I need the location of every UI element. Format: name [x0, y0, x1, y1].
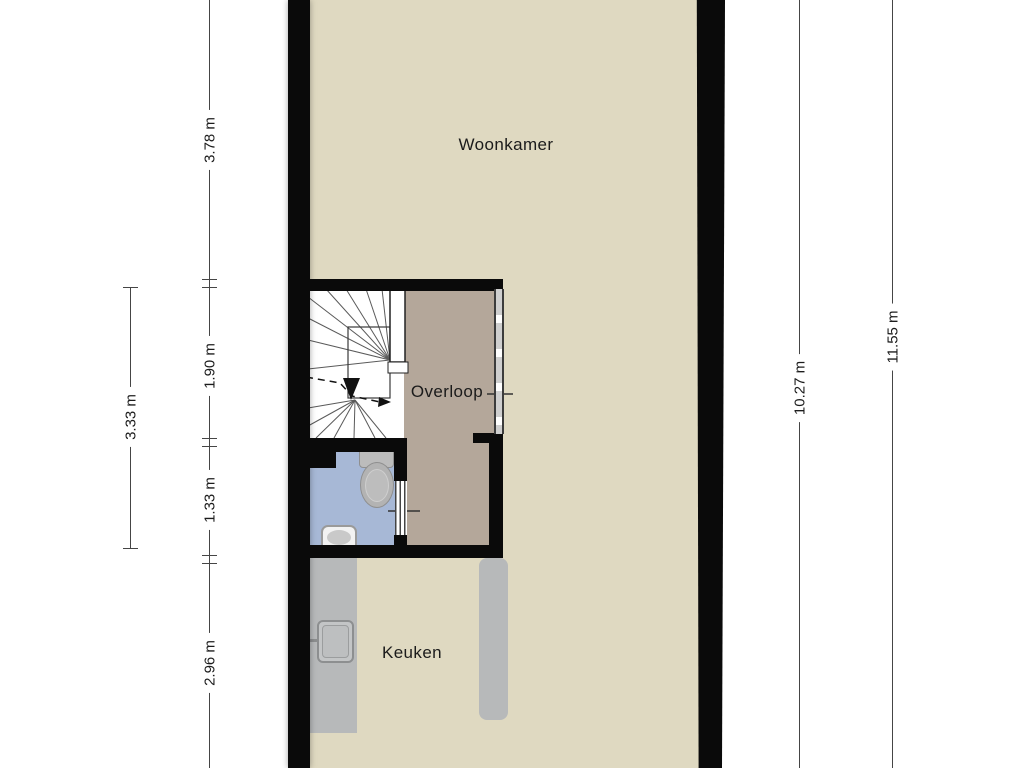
- toilet-bowl-fixture: [360, 462, 394, 508]
- room-label-overloop: Overloop: [411, 382, 483, 402]
- kitchen-counter-right: [479, 558, 508, 720]
- dim-label-1155: 11.55 m: [883, 303, 904, 370]
- wall-toilet-right-upper: [394, 438, 407, 481]
- hand-basin-bowl: [327, 530, 351, 545]
- kitchen-sink-basin: [322, 625, 349, 658]
- floorplan-canvas: Woonkamer Overloop Keuken 3.78 m 1.90 m …: [0, 0, 1024, 768]
- wall-toilet-right-lower: [394, 535, 407, 547]
- dim-tick: [202, 287, 217, 288]
- dim-label-378: 3.78 m: [200, 110, 221, 170]
- dim-tick: [123, 287, 138, 288]
- toilet-door: [395, 481, 407, 535]
- room-label-woonkamer: Woonkamer: [459, 135, 554, 155]
- dim-tick: [202, 446, 217, 447]
- dim-label-133: 1.33 m: [200, 470, 221, 530]
- dimension-line-right-outer: [892, 0, 893, 768]
- dim-tick: [202, 279, 217, 280]
- dim-tick: [123, 548, 138, 549]
- kitchen-sink-fixture: [317, 620, 354, 663]
- dim-label-190: 1.90 m: [200, 336, 221, 396]
- dim-tick: [202, 563, 217, 564]
- wall-exterior-right: [695, 0, 725, 768]
- overloop-floor: [404, 289, 497, 547]
- room-label-keuken: Keuken: [382, 643, 442, 663]
- dim-label-296: 2.96 m: [200, 633, 221, 693]
- wall-exterior-left: [288, 0, 310, 768]
- dim-label-1027: 10.27 m: [790, 354, 811, 422]
- dim-tick: [202, 555, 217, 556]
- kitchen-faucet-icon: [309, 639, 317, 642]
- dim-label-333: 3.33 m: [121, 387, 142, 447]
- wall-toilet-corner: [308, 438, 336, 468]
- wall-woonkamer-divider: [288, 279, 503, 291]
- staircase-floor: [308, 289, 405, 438]
- dim-tick: [202, 438, 217, 439]
- toilet-bowl-seat: [365, 469, 389, 502]
- wall-overloop-right: [489, 433, 503, 548]
- glass-wall: [494, 289, 504, 434]
- wall-overloop-stub: [473, 433, 503, 443]
